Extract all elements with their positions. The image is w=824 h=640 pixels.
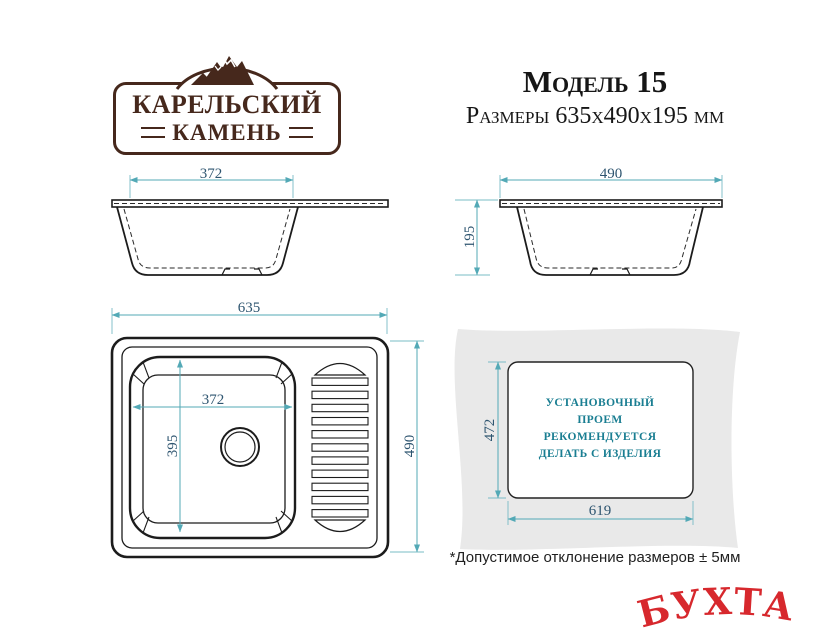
- drain-hole-icon: [221, 428, 259, 466]
- buhta-watermark: БУХТА: [636, 578, 801, 640]
- cutout-note-line3: РЕКОМЕНДУЕТСЯ: [544, 431, 657, 443]
- dimension-side-height: 195: [455, 200, 498, 275]
- dimension-label-619: 619: [589, 503, 612, 519]
- dimension-label-490-top: 490: [402, 435, 418, 458]
- tolerance-note: *Допустимое отклонение размеров ± 5мм: [425, 549, 765, 566]
- dimension-front-bowl-width: 372: [130, 166, 293, 198]
- dimension-top-height: 490: [390, 341, 424, 552]
- side-section-profile: [500, 200, 722, 275]
- dimension-label-490-side: 490: [600, 166, 623, 182]
- dimension-label-195: 195: [462, 226, 478, 249]
- cutout-note-line2: ПРОЕМ: [577, 414, 622, 426]
- buhta-watermark-text: БУХТА: [633, 579, 798, 636]
- model-title: Модель 15: [425, 64, 765, 100]
- brand-name-line1: КАРЕЛЬСКИЙ: [116, 92, 338, 118]
- brand-logo-box: КАРЕЛЬСКИЙ КАМЕНЬ: [113, 82, 341, 155]
- dimension-label-472: 472: [482, 419, 498, 442]
- front-section-profile: [112, 200, 388, 275]
- title-block: Модель 15 Размеры 635х490х195 мм: [425, 64, 765, 130]
- dimension-bowl-length: 395: [165, 360, 181, 532]
- brand-name-line2: КАМЕНЬ: [172, 121, 281, 144]
- side-section-view: 490 195: [438, 166, 738, 288]
- dimension-label-372-front: 372: [200, 166, 223, 182]
- bowl-outline: [130, 357, 295, 538]
- cutout-note-line4: ДЕЛАТЬ С ИЗДЕЛИЯ: [539, 448, 662, 460]
- cutout-opening: [508, 362, 693, 498]
- mountains-emblem-icon: [173, 46, 281, 90]
- dimension-label-372-top: 372: [202, 392, 225, 408]
- installation-cutout-view: УСТАНОВОЧНЫЙ ПРОЕМ РЕКОМЕНДУЕТСЯ ДЕЛАТЬ …: [438, 323, 758, 558]
- double-rule-left: [141, 127, 165, 138]
- brand-logo: КАРЕЛЬСКИЙ КАМЕНЬ: [113, 40, 341, 156]
- top-plan-view: 635 490 372 395: [88, 296, 433, 566]
- dimension-label-635: 635: [238, 300, 261, 316]
- brand-name-line2-row: КАМЕНЬ: [116, 121, 338, 144]
- dimension-bowl-width: 372: [133, 392, 292, 408]
- dimension-label-395: 395: [165, 435, 181, 458]
- dimension-side-width: 490: [500, 166, 722, 198]
- cutout-note-line1: УСТАНОВОЧНЫЙ: [546, 395, 655, 409]
- dimension-top-width: 635: [112, 300, 387, 334]
- double-rule-right: [289, 127, 313, 138]
- overall-dimensions-title: Размеры 635х490х195 мм: [425, 103, 765, 130]
- bowl-corner-chamfers: [133, 362, 292, 533]
- drainboard-ribs: [312, 364, 368, 532]
- product-drawing-page: КАРЕЛЬСКИЙ КАМЕНЬ Модель 15 Размеры 635х…: [0, 0, 824, 640]
- sink-body-outline: [112, 338, 388, 557]
- front-section-view: 372: [85, 166, 395, 288]
